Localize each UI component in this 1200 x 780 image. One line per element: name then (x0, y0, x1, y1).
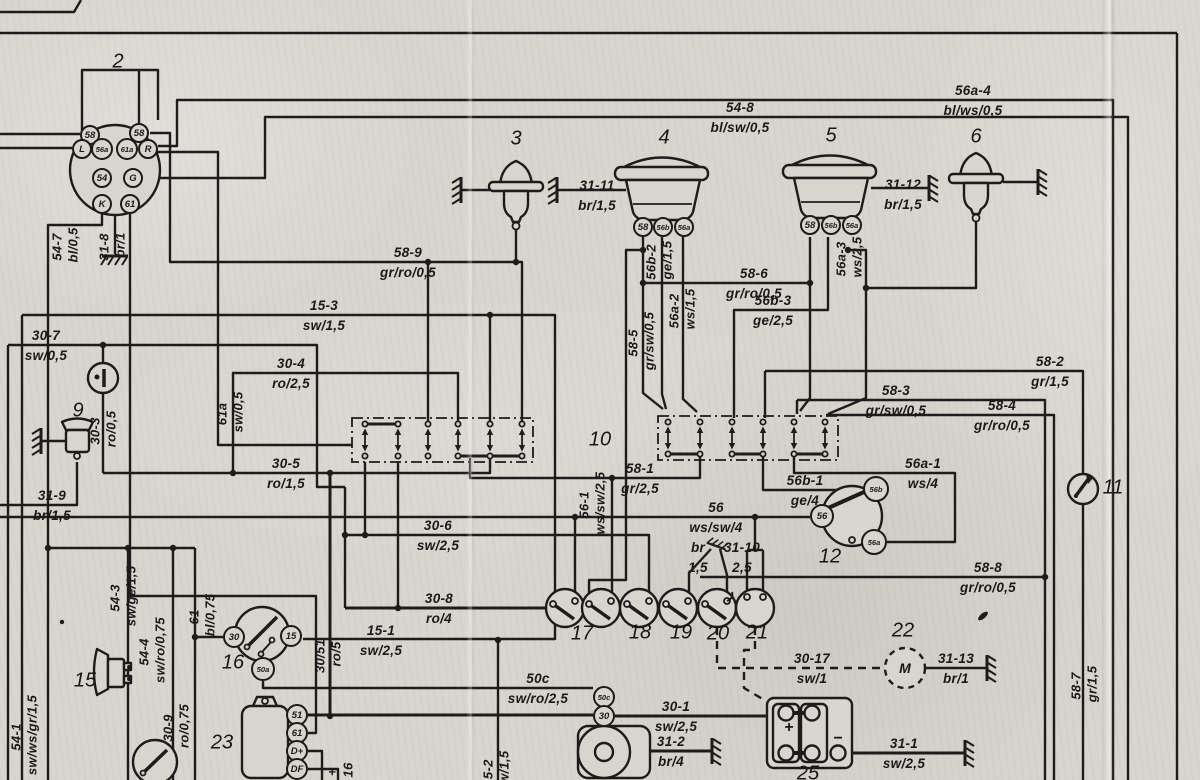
terminal-61a: 61a (116, 138, 138, 160)
wire-label-spec: sw/ro/2,5 (508, 691, 568, 706)
wire-label-name: 31-13 (938, 651, 974, 666)
wire-label-spec: br/1,5 (578, 198, 616, 213)
wire-label-name: 30-7 (32, 328, 60, 343)
component-number-15: 15 (74, 670, 96, 693)
wire-label-spec: sw/2,5 (883, 756, 925, 771)
symbol-+: + (784, 719, 793, 737)
symbol-M: M (899, 660, 911, 676)
wire-label-name: 30-6 (424, 518, 452, 533)
component-number-20: 20 (707, 623, 729, 646)
wire-label-spec: ge/1,5 (660, 241, 675, 280)
wire-label-name: 56b-2 (644, 244, 659, 279)
terminal-56a: 56a (842, 215, 862, 235)
wire-label-spec: sw/ge/1,5 (124, 566, 139, 627)
wire-label-name: 58-7 (1069, 672, 1084, 699)
wire-label-spec: gr/ro/0,5 (960, 580, 1016, 595)
wire-label-name: 56-1 (577, 491, 592, 518)
wire-label-spec: sw/2,5 (417, 538, 459, 553)
wire-label-spec: br/4 (658, 754, 684, 769)
component-number-22: 22 (892, 620, 914, 643)
terminal-56b: 56b (821, 215, 841, 235)
component-number-25: 25 (797, 763, 819, 780)
wire-label-spec: ge/2,5 (753, 313, 793, 328)
component-number-6: 6 (970, 126, 981, 149)
wire-label-spec: ro/0,75 (177, 704, 192, 748)
wire-label-name: 61 (187, 609, 202, 624)
wire-label-spec: br/1,5 (33, 508, 71, 523)
wire-label-name: 58-3 (882, 383, 910, 398)
terminal-15: 15 (280, 625, 302, 647)
wire-label-spec: sw/1,5 (303, 318, 345, 333)
wire-label-name: 54-7 (50, 233, 65, 260)
wire-label-name: 58-9 (394, 245, 422, 260)
wire-label-name: 56a-3 (834, 242, 849, 277)
wire-label-name: 56b-3 (755, 293, 792, 308)
wire-label-name: 54-1 (9, 723, 24, 750)
component-number-2: 2 (112, 51, 123, 74)
wire-label-name: 30-4 (277, 356, 305, 371)
wire-label-spec: gr/ro/0,5 (974, 418, 1030, 433)
component-number-4: 4 (658, 127, 669, 150)
wire-label-spec: br/1,5 (884, 197, 922, 212)
wire-label-name: 15-3 (310, 298, 338, 313)
wire-label-name: 56b-1 (787, 473, 824, 488)
component-number-11: 11 (1103, 477, 1124, 500)
terminal-30: 30 (223, 626, 245, 648)
wire-label-spec: gr/1,5 (1031, 374, 1069, 389)
component-number-18: 18 (629, 622, 651, 645)
wire-label-name: 31-8 (97, 233, 112, 260)
terminal-56a: 56a (861, 529, 887, 555)
wire-label-spec: ws/sw/2,5 (593, 472, 608, 535)
wire-label-spec: sw/0,5 (231, 392, 246, 433)
wire-label-name: 58-5 (626, 329, 641, 356)
wire-label-spec: ro/4 (426, 611, 452, 626)
wire-label-spec: sw/2,5 (360, 643, 402, 658)
labels-layer: 2345691011121516171819202122232556a-4bl/… (0, 0, 1200, 780)
component-number-21: 21 (746, 622, 768, 645)
wire-label-name: 61a (215, 403, 230, 426)
wire-label-name: 30-3 (88, 417, 103, 444)
wire-label-name: 31-2 (657, 734, 685, 749)
wire-label-name: 54-8 (726, 100, 754, 115)
wire-label-name: 31-10 (724, 540, 760, 555)
wire-label-name: 31-11 (579, 178, 614, 193)
terminal-R: R (138, 139, 158, 159)
wire-label-spec: gr/ro/0,5 (380, 265, 436, 280)
wire-label-name: 56a-2 (667, 294, 682, 329)
wire-label-spec: ro/0,5 (104, 411, 119, 447)
component-number-16: 16 (222, 652, 244, 675)
wire-label-name: 50c (526, 671, 549, 686)
terminal-56b: 56b (863, 476, 889, 502)
wire-label-name: 31-9 (38, 488, 66, 503)
wire-label-spec: gr/1,5 (1085, 666, 1100, 702)
wire-label-name: 54-3 (108, 584, 123, 611)
wire-label-spec: ws/1,5 (683, 289, 698, 330)
wire-label-name: 31-12 (885, 177, 921, 192)
component-number-3: 3 (510, 128, 521, 151)
wire-label-name: 58-2 (1036, 354, 1064, 369)
wire-label-name: 31-1 (890, 736, 918, 751)
terminal-56a: 56a (674, 217, 694, 237)
wire-label-spec: sw/0,5 (25, 348, 67, 363)
wire-label-spec: sw/1,5 (497, 751, 512, 780)
wire-label-name: 15-1 (367, 623, 395, 638)
wire-label-name: 54-4 (137, 638, 152, 665)
wire-label-name: 30-5 (272, 456, 300, 471)
wire-label-spec: br/1 (113, 232, 128, 257)
wire-label-spec: sw/2,5 (655, 719, 697, 734)
wire-label-name: 56 (708, 500, 724, 515)
terminal-56: 56 (810, 504, 834, 528)
wire-label-name: 56a-4 (955, 83, 991, 98)
component-number-5: 5 (825, 125, 836, 148)
terminal-50a: 50a (251, 657, 275, 681)
wire-label-spec: sw/ro/0,75 (153, 617, 168, 683)
wire-label-spec: 1,5 (688, 560, 708, 575)
terminal-K: K (92, 194, 112, 214)
terminal-DF: DF (286, 758, 308, 780)
terminal-30: 30 (593, 705, 615, 727)
wire-label-spec: sw/ws/gr/1,5 (25, 695, 40, 775)
wire-label-spec: bl/0,75 (203, 594, 218, 637)
wire-label-name: 58-6 (740, 266, 768, 281)
wire-label-name: br (691, 540, 705, 555)
component-number-12: 12 (819, 546, 841, 569)
wire-label-name: 56a-1 (905, 456, 941, 471)
wire-label-spec: ro/5 (329, 641, 344, 666)
wire-label-name: 30-17 (794, 651, 830, 666)
terminal-56a: 56a (91, 138, 113, 160)
wire-label-name: 30/51 (313, 639, 328, 673)
wire-label-spec: ws/sw/4 (689, 520, 742, 535)
wire-label-spec: br/1 (943, 671, 969, 686)
terminal-61: 61 (120, 194, 140, 214)
wire-label-spec: gr/2,5 (621, 481, 659, 496)
wire-label-name: + (325, 768, 340, 776)
terminal-58: 58 (800, 215, 820, 235)
wire-label-name: 15-2 (481, 759, 496, 780)
wire-label-name: 30-8 (425, 591, 453, 606)
wire-label-spec: ro/1,5 (267, 476, 305, 491)
wire-label-spec: gr/sw/0,5 (642, 312, 657, 370)
terminal-54: 54 (92, 168, 112, 188)
symbol-−: − (833, 730, 842, 748)
wire-label-name: 58-4 (988, 398, 1016, 413)
wiring-diagram-page: 2345691011121516171819202122232556a-4bl/… (0, 0, 1200, 780)
wire-label-spec: bl/sw/0,5 (711, 120, 770, 135)
wire-label-spec: ws/2,5 (850, 237, 865, 278)
terminal-G: G (123, 168, 143, 188)
wire-label-name: 30-9 (161, 714, 176, 741)
terminal-L: L (72, 139, 92, 159)
wire-label-name: 58-1 (626, 461, 654, 476)
wire-label-spec: bl/0,5 (66, 227, 81, 262)
wire-label-name: 30-1 (662, 699, 690, 714)
wire-label-name: 58-8 (974, 560, 1002, 575)
terminal-56b: 56b (653, 217, 673, 237)
wire-label-spec: 16 (341, 762, 356, 777)
component-number-10: 10 (589, 429, 611, 452)
wire-label-spec: ws/4 (908, 476, 938, 491)
wire-label-spec: ro/2,5 (272, 376, 310, 391)
component-number-19: 19 (670, 622, 692, 645)
wire-label-spec: 2,5 (732, 560, 752, 575)
terminal-58: 58 (633, 217, 653, 237)
wire-label-spec: gr/sw/0,5 (866, 403, 926, 418)
component-number-23: 23 (211, 732, 233, 755)
component-number-9: 9 (72, 400, 83, 423)
wire-label-spec: bl/ws/0,5 (944, 103, 1003, 118)
component-number-17: 17 (571, 623, 593, 646)
wire-label-spec: sw/1 (797, 671, 827, 686)
